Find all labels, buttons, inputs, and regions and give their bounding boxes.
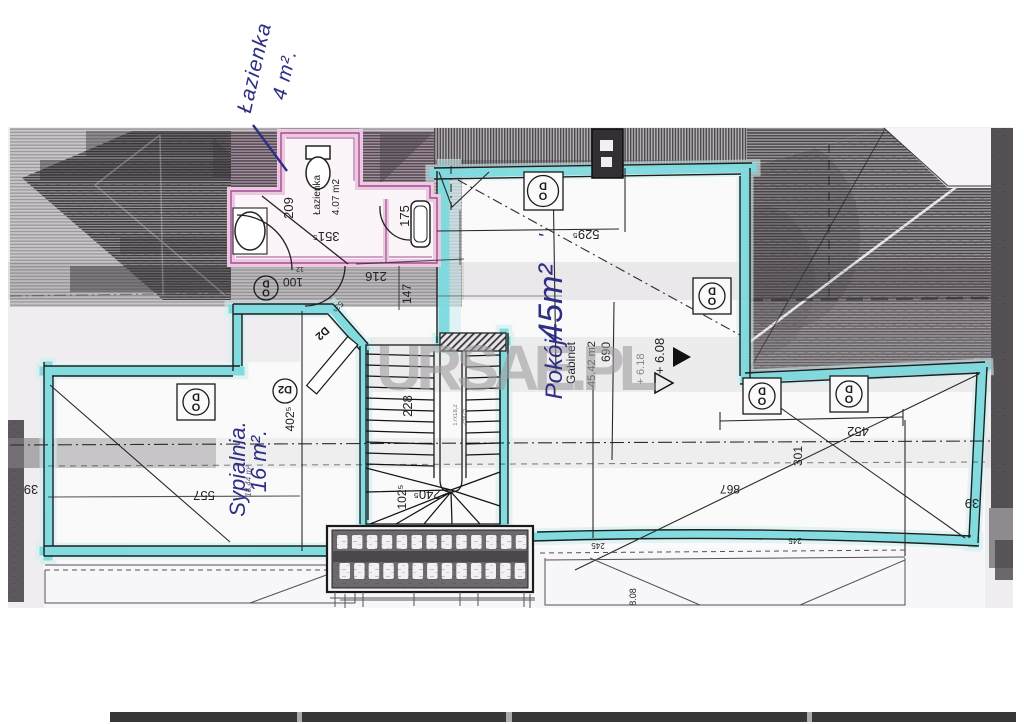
svg-text:209: 209	[281, 197, 296, 219]
svg-text:OD: OD	[707, 285, 716, 307]
svg-text:351⁵: 351⁵	[312, 229, 339, 244]
svg-text:18,44 m²: 18,44 m²	[244, 465, 253, 497]
svg-text:D2: D2	[278, 383, 292, 395]
svg-text:245: 245	[788, 536, 802, 545]
svg-text:402⁵: 402⁵	[283, 406, 297, 431]
svg-text:OD: OD	[538, 180, 547, 202]
svg-text:+ 6.08: + 6.08	[652, 338, 667, 375]
svg-text:8.08: 8.08	[628, 588, 638, 606]
svg-text:216: 216	[365, 269, 387, 284]
svg-text:529⁵: 529⁵	[572, 227, 599, 242]
svg-text:25x25: 25x25	[462, 408, 468, 425]
svg-text:17x18,2: 17x18,2	[453, 404, 459, 426]
svg-text:245: 245	[591, 541, 605, 550]
svg-text:100: 100	[283, 275, 303, 289]
svg-text:OD: OD	[757, 385, 766, 407]
svg-text:12: 12	[296, 265, 304, 272]
svg-text:102⁵: 102⁵	[395, 484, 409, 509]
svg-text:452: 452	[847, 424, 869, 439]
svg-text:Pokój/: Pokój/	[541, 330, 568, 399]
svg-text:240⁵: 240⁵	[413, 487, 440, 502]
svg-text:867: 867	[720, 482, 740, 496]
svg-text:557: 557	[193, 488, 215, 503]
svg-text:39: 39	[965, 496, 979, 511]
svg-text:OD: OD	[191, 391, 200, 413]
svg-text:OD: OD	[844, 383, 853, 405]
svg-text:URSAE.PL: URSAE.PL	[376, 332, 657, 404]
svg-text:39: 39	[24, 482, 38, 497]
svg-text:175: 175	[397, 205, 412, 227]
svg-text:147: 147	[400, 284, 414, 304]
svg-text:301: 301	[791, 446, 805, 466]
svg-text:Łazienka: Łazienka	[312, 175, 323, 215]
svg-text:4.07 m2: 4.07 m2	[331, 178, 342, 215]
svg-text:OD: OD	[262, 278, 270, 298]
svg-text:45m²: 45m²	[532, 263, 570, 342]
